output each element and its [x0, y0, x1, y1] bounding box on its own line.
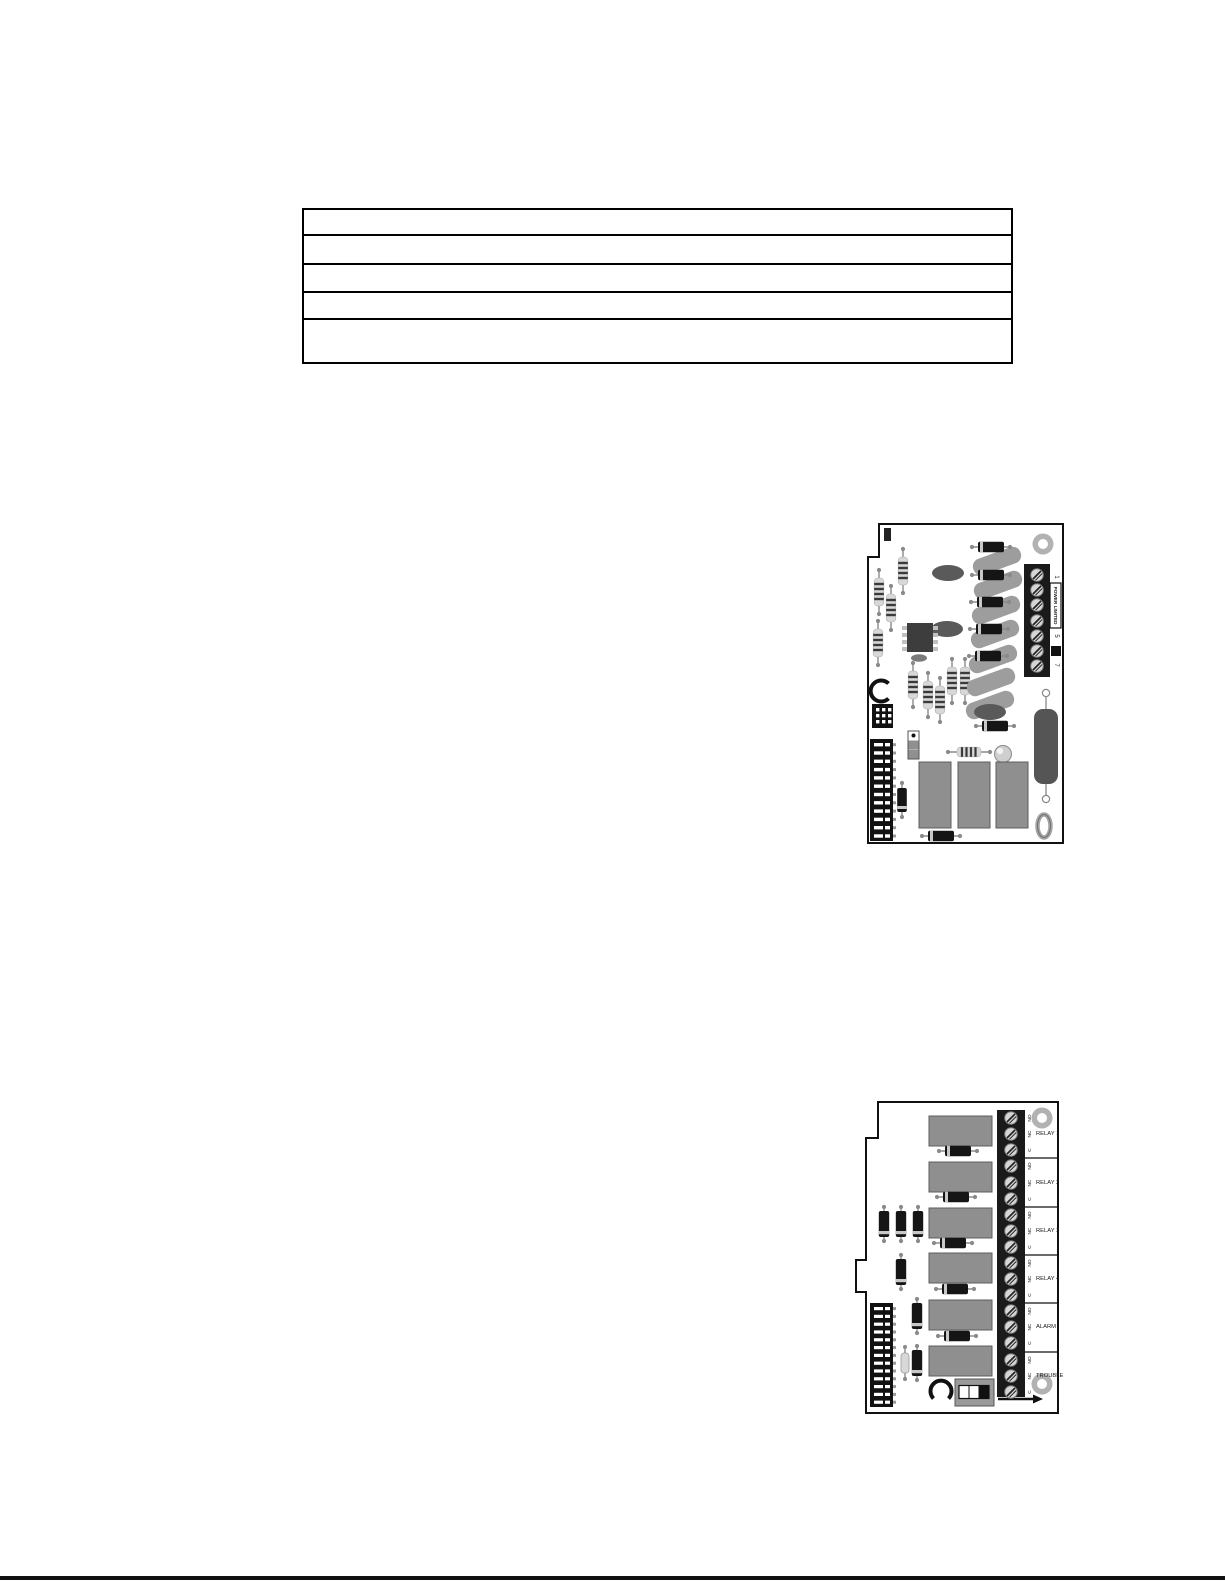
- no-label: NO: [1027, 1114, 1033, 1121]
- screw-terminal: [1031, 599, 1044, 612]
- segment-component: [908, 731, 919, 759]
- no-label: NO: [1027, 1211, 1033, 1218]
- mounting-hole: [1032, 1108, 1053, 1129]
- nc-label: NC: [1027, 1323, 1033, 1330]
- relay-group-label: RELAY 4: [1036, 1276, 1060, 1282]
- screw-terminal: [1005, 1289, 1018, 1302]
- screw-terminal: [1031, 584, 1044, 597]
- relay: [958, 762, 990, 828]
- screw-terminal-block: [1024, 564, 1050, 677]
- led: [995, 746, 1012, 763]
- relay: [996, 762, 1028, 828]
- table-row: [304, 265, 1011, 293]
- relay-board-diagram: NO NC C RELAY 1 NO NC C RELAY 2 NO NC C …: [843, 1083, 1065, 1419]
- c-label: C: [1027, 1341, 1033, 1345]
- screw-terminal: [1005, 1144, 1018, 1157]
- dip-switch: [955, 1379, 994, 1406]
- screw-terminal: [1005, 1321, 1018, 1334]
- table-row: [304, 320, 1011, 362]
- spec-table: [302, 208, 1013, 364]
- relay: [929, 1116, 992, 1146]
- connector-block: [872, 704, 893, 728]
- c-label: C: [1027, 1148, 1033, 1152]
- jumper-component: [884, 528, 891, 541]
- table-row: [304, 293, 1011, 320]
- screw-terminal: [1031, 615, 1044, 628]
- relay-group-label: TROUBLE: [1036, 1373, 1064, 1379]
- table-row: [304, 210, 1011, 236]
- screw-terminal: [1005, 1160, 1018, 1173]
- pad-ellipse: [932, 565, 964, 581]
- relay: [929, 1300, 992, 1330]
- relay: [929, 1208, 992, 1238]
- nc-label: NC: [1027, 1275, 1033, 1282]
- no-label: NO: [1027, 1162, 1033, 1169]
- no-label: NO: [1027, 1259, 1033, 1266]
- screw-terminal: [1031, 645, 1044, 658]
- terminal-number-6-inverted: [1051, 646, 1061, 656]
- no-label: NO: [1027, 1307, 1033, 1314]
- screw-terminal: [1005, 1241, 1018, 1254]
- nc-label: NC: [1027, 1179, 1033, 1186]
- document-page: 1 POWER LIMITED 5 7: [0, 0, 1225, 1585]
- io-expander-board-diagram: 1 POWER LIMITED 5 7: [850, 515, 1070, 850]
- c-label: C: [1027, 1245, 1033, 1249]
- mounting-hole: [1033, 534, 1054, 555]
- c-label: C: [1027, 1197, 1033, 1201]
- screw-terminal: [1005, 1209, 1018, 1222]
- screw-terminal: [1005, 1225, 1018, 1238]
- relay-group-label: RELAY 3: [1036, 1228, 1059, 1234]
- nc-label: NC: [1027, 1227, 1033, 1234]
- screw-terminal: [1005, 1257, 1018, 1270]
- relays-group: [919, 762, 1028, 828]
- power-limited-label: POWER LIMITED: [1053, 587, 1058, 625]
- relay: [919, 762, 951, 828]
- c-label: C: [1027, 1390, 1033, 1394]
- relay-group-label: RELAY 1: [1036, 1131, 1059, 1137]
- screw-terminal: [1005, 1128, 1018, 1141]
- screw-terminal: [1005, 1177, 1018, 1190]
- nc-label: NC: [1027, 1372, 1033, 1379]
- screw-terminal: [1005, 1305, 1018, 1318]
- c-label: C: [1027, 1293, 1033, 1297]
- footer-rule: [0, 1576, 1225, 1580]
- screw-terminal: [1005, 1112, 1018, 1125]
- no-label: NO: [1027, 1356, 1033, 1363]
- screw-terminal: [1005, 1193, 1018, 1206]
- screw-terminal: [1005, 1370, 1018, 1383]
- table-row: [304, 236, 1011, 265]
- screw-terminal: [1005, 1273, 1018, 1286]
- screw-terminal: [1005, 1386, 1018, 1399]
- pad-ellipse: [974, 704, 1006, 720]
- screw-terminal: [1031, 660, 1044, 673]
- pin-header: [870, 739, 896, 841]
- screw-terminal: [1031, 630, 1044, 643]
- screw-terminal: [1005, 1354, 1018, 1367]
- relay: [929, 1162, 992, 1192]
- relay-group-label: RELAY 2: [1036, 1180, 1059, 1186]
- screw-terminal-block: [997, 1110, 1025, 1398]
- screw-terminal: [1031, 569, 1044, 582]
- relay: [929, 1346, 992, 1376]
- relay-group-label: ALARM: [1036, 1324, 1056, 1330]
- relay: [929, 1253, 992, 1283]
- screw-terminal: [1005, 1337, 1018, 1350]
- nc-label: NC: [1027, 1130, 1033, 1137]
- pin-header: [870, 1303, 896, 1407]
